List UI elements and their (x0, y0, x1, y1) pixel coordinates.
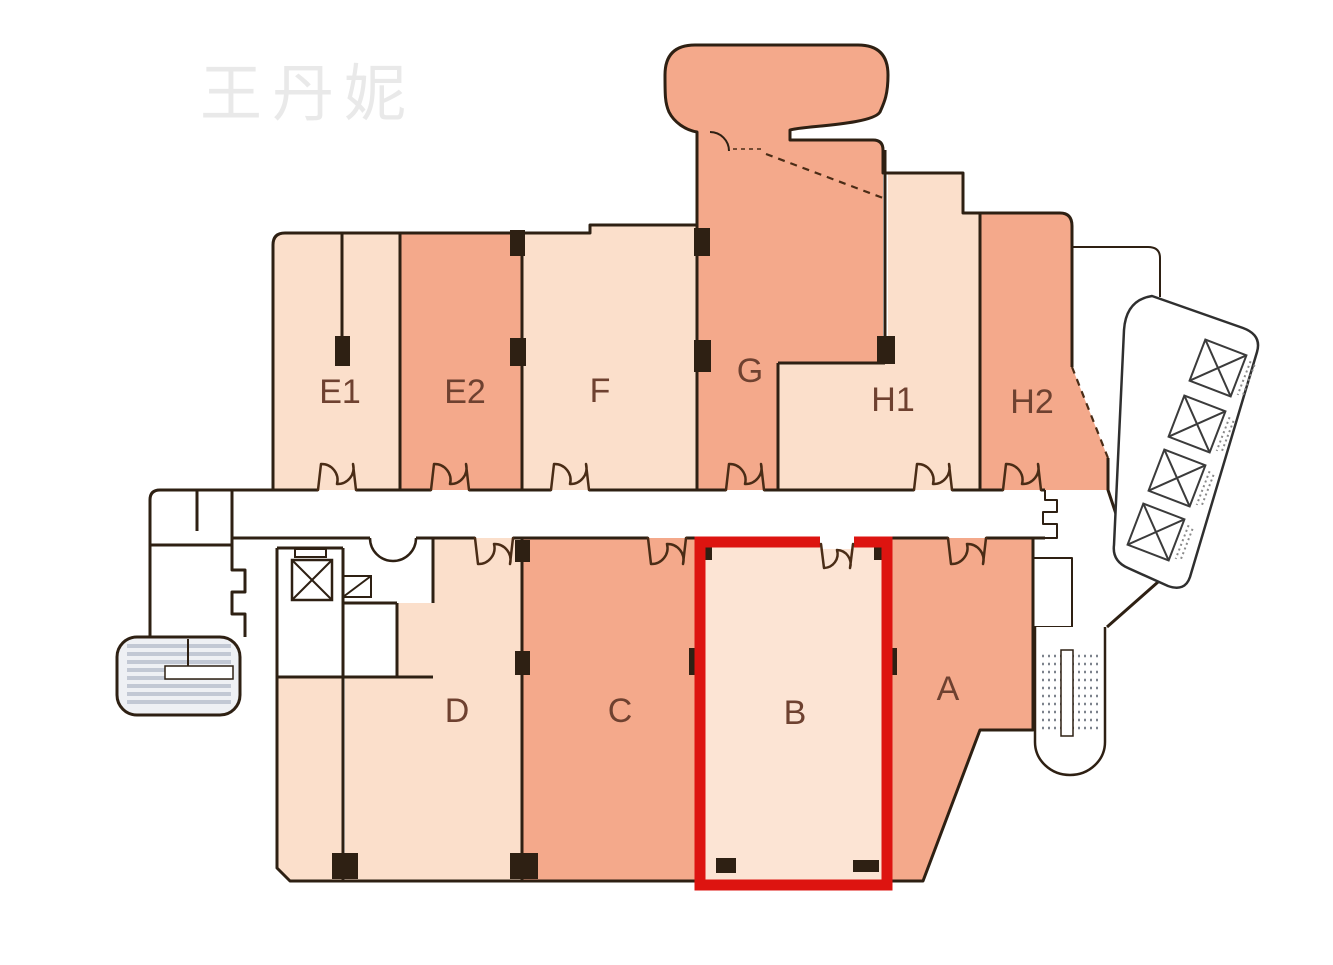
unit-e2-region[interactable] (400, 233, 522, 490)
elevator-bank (1114, 296, 1258, 588)
door-swing-icon (343, 576, 371, 597)
unit-label-h1: H1 (871, 381, 914, 419)
floorplan-page: E1 E2 F G H1 H2 D C B A 王丹妮 (0, 0, 1333, 965)
left-wing-outline (150, 490, 245, 640)
unit-label-e1: E1 (319, 373, 361, 411)
staircase-right (1035, 627, 1105, 775)
side-room-region[interactable] (277, 677, 343, 881)
unit-label-d: D (445, 692, 470, 730)
unit-label-f: F (590, 372, 611, 410)
unit-label-b: B (784, 694, 807, 732)
corridor-end-crenellation (1043, 490, 1057, 538)
selected-unit-door-gap (820, 534, 854, 549)
staircase-left (117, 637, 240, 715)
elevator-bank-connector (1072, 247, 1160, 297)
floor-plan-svg: E1 E2 F G H1 H2 D C B A 王丹妮 (0, 0, 1333, 965)
elevator-icon (292, 549, 332, 600)
unit-label-c: C (608, 692, 633, 730)
watermark-text: 王丹妮 (200, 57, 416, 130)
unit-label-g: G (737, 352, 763, 390)
corridor-arc-bump (370, 538, 416, 561)
unit-label-e2: E2 (444, 373, 486, 411)
right-notch-room (1033, 558, 1072, 627)
unit-a-region[interactable] (890, 538, 1033, 881)
unit-f-region[interactable] (522, 225, 697, 490)
unit-label-h2: H2 (1010, 383, 1053, 421)
unit-h2-region[interactable] (980, 213, 1108, 490)
unit-label-a: A (937, 670, 960, 708)
